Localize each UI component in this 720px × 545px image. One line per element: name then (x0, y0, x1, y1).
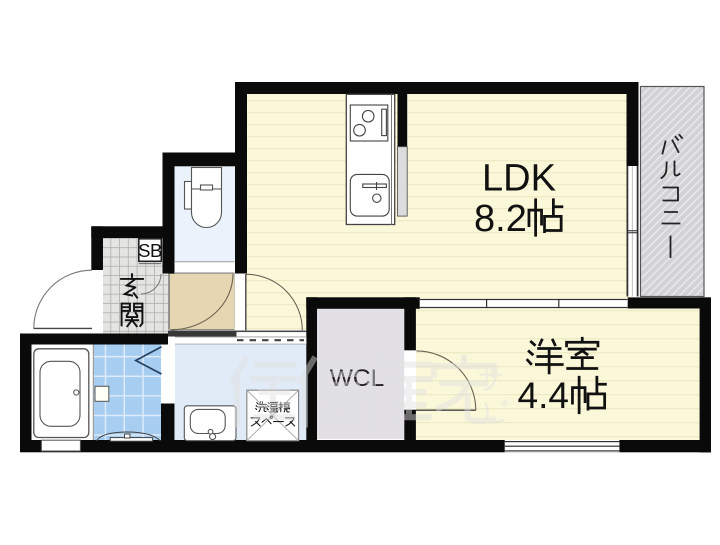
svg-text:4.4: 4.4 (518, 375, 569, 416)
svg-text:SB: SB (138, 240, 162, 261)
svg-text:LDK: LDK (482, 158, 556, 200)
svg-text:8.2: 8.2 (474, 198, 527, 240)
